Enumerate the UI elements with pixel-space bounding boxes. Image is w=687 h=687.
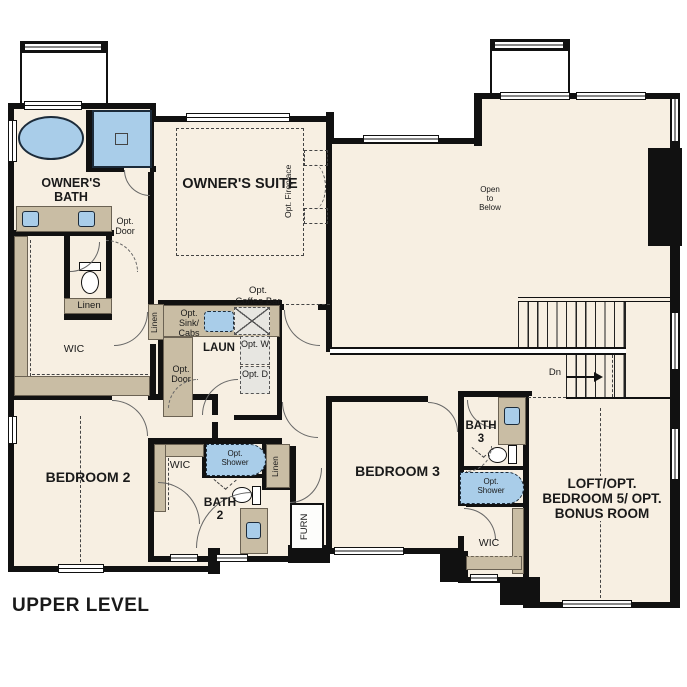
open-to-below-left [326,138,482,352]
linen-shelf: Linen [64,298,112,314]
step-wall [500,577,540,605]
bay-window [494,41,564,49]
bath2-label: BATH 2 [200,496,240,523]
step-wall [326,112,334,144]
opt-fireplace-label: Opt. Fireplace [284,148,298,234]
wic-shelf-dash [30,240,31,376]
step-wall [440,551,468,582]
wic-label: WIC [52,344,96,356]
opt-door-label: Opt. Door [108,216,142,236]
laundry-sink-icon [204,311,234,332]
furnace-closet: FURN [290,503,324,550]
window [334,547,404,555]
sink-icon [22,211,39,227]
stair-dashed-line [612,355,613,397]
optional-washer-box: Opt. W [240,336,270,365]
toilet-icon [81,271,99,294]
wic-label: WIC [158,460,202,472]
laundry-label: LAUN [196,342,242,355]
bedroom2-label: BEDROOM 2 [26,470,150,486]
sink-icon [78,211,95,227]
door-opening [200,415,234,422]
bedroom2-dashed-line [80,416,81,562]
stairs-upper-run [518,302,626,348]
window [576,92,646,100]
opt-sink-cabs-label: Opt. Sink/ Cabs [174,308,204,338]
linen-cabinet: Linen [148,304,164,340]
window [470,574,498,582]
bathtub-icon [18,116,84,160]
toilet-icon [508,445,517,464]
window [671,312,679,370]
bay-window [24,43,102,51]
window [671,428,679,480]
furnace-label: FURN [300,507,314,547]
wic-shelf [14,376,150,396]
window [671,98,679,142]
opt-coffee-bar-dashed [286,304,330,305]
window [24,101,82,110]
bedroom3-label: BEDROOM 3 [340,464,455,480]
optional-dryer-box: Opt. D [240,366,270,394]
linen-label: Linen [65,301,113,312]
wic-shelf-dash [32,374,148,375]
window [562,600,632,608]
owners-bath-label: OWNER'S BATH [28,176,114,204]
bay-connector [568,50,570,95]
stairs-dn-label: Dn [546,368,564,379]
toilet-icon [252,486,261,505]
floor-plan: Dn Linen Linen Opt. W Opt. D [0,0,687,687]
stairs-dn-arrow [566,376,596,378]
opt-washer-label: Opt. W [241,339,269,349]
step-wall [474,93,482,146]
bay-connector [490,50,492,95]
window [363,135,439,143]
opt-fireplace-dashed [304,208,328,224]
bath3-tub-icon: Opt. Shower [460,472,524,504]
opt-shower-label: Opt. Shower [471,478,511,496]
open-to-below-railing [330,347,626,355]
stair-dashed-edge [528,397,566,398]
opt-shower-label: Opt. Shower [215,450,255,468]
opt-coffee-bar-label: Opt. Coffee Bar [234,286,282,307]
opt-dryer-label: Opt. D [241,369,269,379]
wic-label: WIC [468,538,510,550]
linen-cabinet: Linen [266,444,290,488]
linen-label: Linen [150,306,162,339]
wic-shelf [14,236,28,394]
loft-label: LOFT/OPT. BEDROOM 5/ OPT. BONUS ROOM [540,476,664,521]
window [500,92,570,100]
wc-wall [64,314,112,320]
plan-title: UPPER LEVEL [12,595,232,616]
shower-drain-icon [115,133,128,145]
stair-bottom-edge [566,397,680,399]
stairs-dn-arrowhead [594,372,603,382]
bay-connector [106,52,108,105]
window [170,554,198,562]
sink-icon [504,407,520,425]
open-to-below-label: Open to Below [476,186,504,213]
window [8,416,17,444]
bath2-tub-icon: Opt. Shower [206,444,266,476]
window [58,564,104,573]
window [8,120,17,162]
window [216,554,248,562]
wic3-shelf [466,556,522,570]
window [186,113,290,122]
bath3-label: BATH 3 [464,420,498,446]
bay-connector [20,52,22,105]
linen-label: Linen [271,447,285,487]
coffee-bar-sink-icon [234,307,270,335]
opt-door-label: Opt. Door [166,364,196,384]
